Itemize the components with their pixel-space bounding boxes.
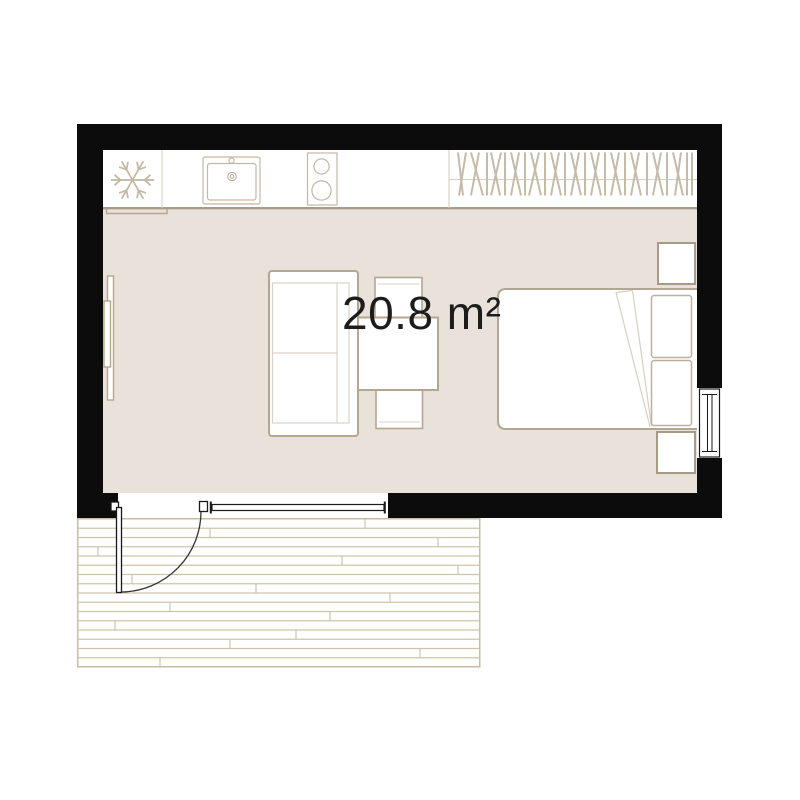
glazing-panel	[211, 502, 385, 514]
terrace-deck	[78, 519, 480, 667]
wall-left	[77, 124, 103, 518]
nightstand-bottom	[657, 432, 695, 473]
stool-bottom	[376, 390, 423, 429]
floor-plan-drawing	[0, 0, 800, 800]
kitchen-sink	[203, 157, 260, 204]
kitchen-counter	[103, 150, 697, 214]
window-right	[697, 388, 722, 458]
pillow-bottom	[652, 361, 692, 426]
floor-plan: 20.8 m²	[0, 0, 800, 800]
wall-right-upper	[697, 124, 722, 388]
pillow-top	[652, 296, 692, 358]
wall-top	[77, 124, 722, 150]
door-leaf	[117, 508, 122, 593]
wall-bottom	[388, 493, 722, 518]
door-frame-post	[200, 502, 208, 512]
nightstand-top	[658, 243, 695, 284]
room-area-label: 20.8 m²	[342, 290, 501, 336]
cooktop	[308, 153, 338, 205]
